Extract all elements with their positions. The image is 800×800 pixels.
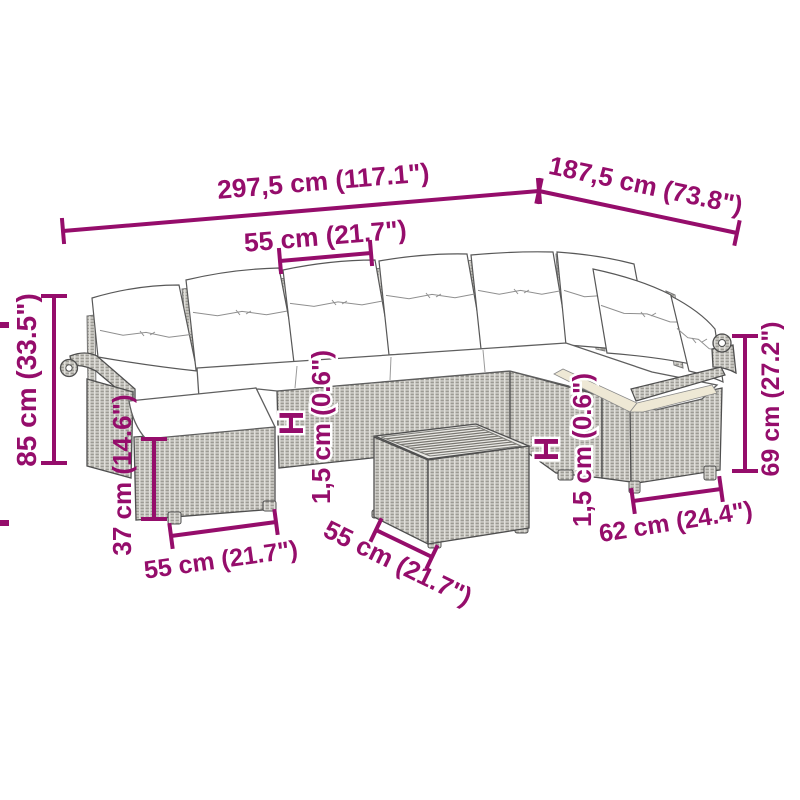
svg-text:85 cm (33.5"): 85 cm (33.5") [11,293,42,467]
svg-text:37 cm (14.6"): 37 cm (14.6") [107,394,137,555]
svg-text:1,5 cm (0.6"): 1,5 cm (0.6") [306,350,336,504]
svg-text:1,5 cm (0.6"): 1,5 cm (0.6") [567,373,597,527]
svg-text:69 cm (27.2"): 69 cm (27.2") [757,322,785,477]
svg-text:H: H [528,437,566,462]
